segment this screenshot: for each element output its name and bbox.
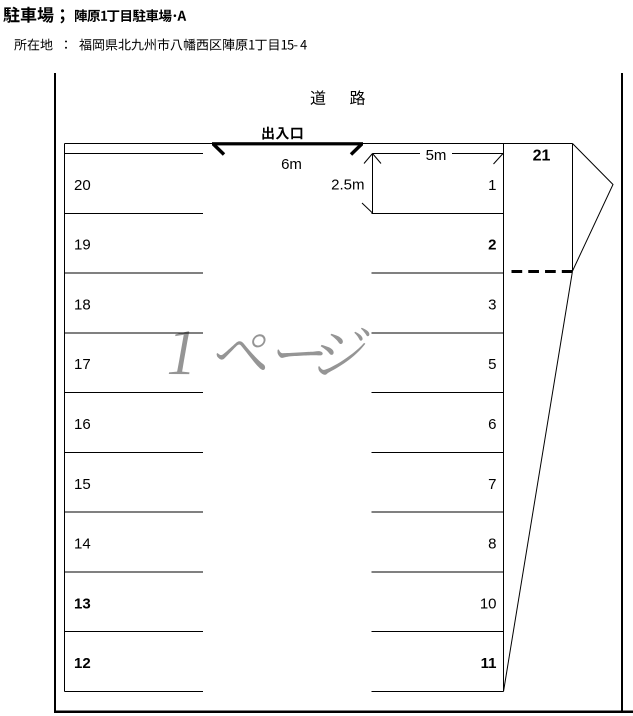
svg-text:18: 18 <box>74 296 91 313</box>
svg-text:11: 11 <box>481 655 497 672</box>
svg-text:3: 3 <box>488 296 496 313</box>
svg-text:2: 2 <box>488 237 496 254</box>
svg-text:6m: 6m <box>281 156 302 173</box>
svg-text:20: 20 <box>74 177 91 194</box>
svg-text:13: 13 <box>74 595 91 612</box>
svg-text:16: 16 <box>74 416 91 433</box>
svg-text:1: 1 <box>488 177 496 194</box>
svg-text:17: 17 <box>74 356 91 373</box>
svg-text:19: 19 <box>74 237 91 254</box>
svg-text:2.5m: 2.5m <box>331 177 364 194</box>
svg-text:5m: 5m <box>426 147 447 164</box>
svg-text:14: 14 <box>74 536 91 553</box>
svg-text:10: 10 <box>480 595 497 612</box>
svg-text:12: 12 <box>74 655 91 672</box>
svg-text:7: 7 <box>488 476 496 493</box>
svg-text:21: 21 <box>533 148 551 165</box>
svg-text:8: 8 <box>488 536 496 553</box>
svg-text:6: 6 <box>488 416 496 433</box>
svg-text:5: 5 <box>488 356 496 373</box>
svg-text:15: 15 <box>74 476 91 493</box>
